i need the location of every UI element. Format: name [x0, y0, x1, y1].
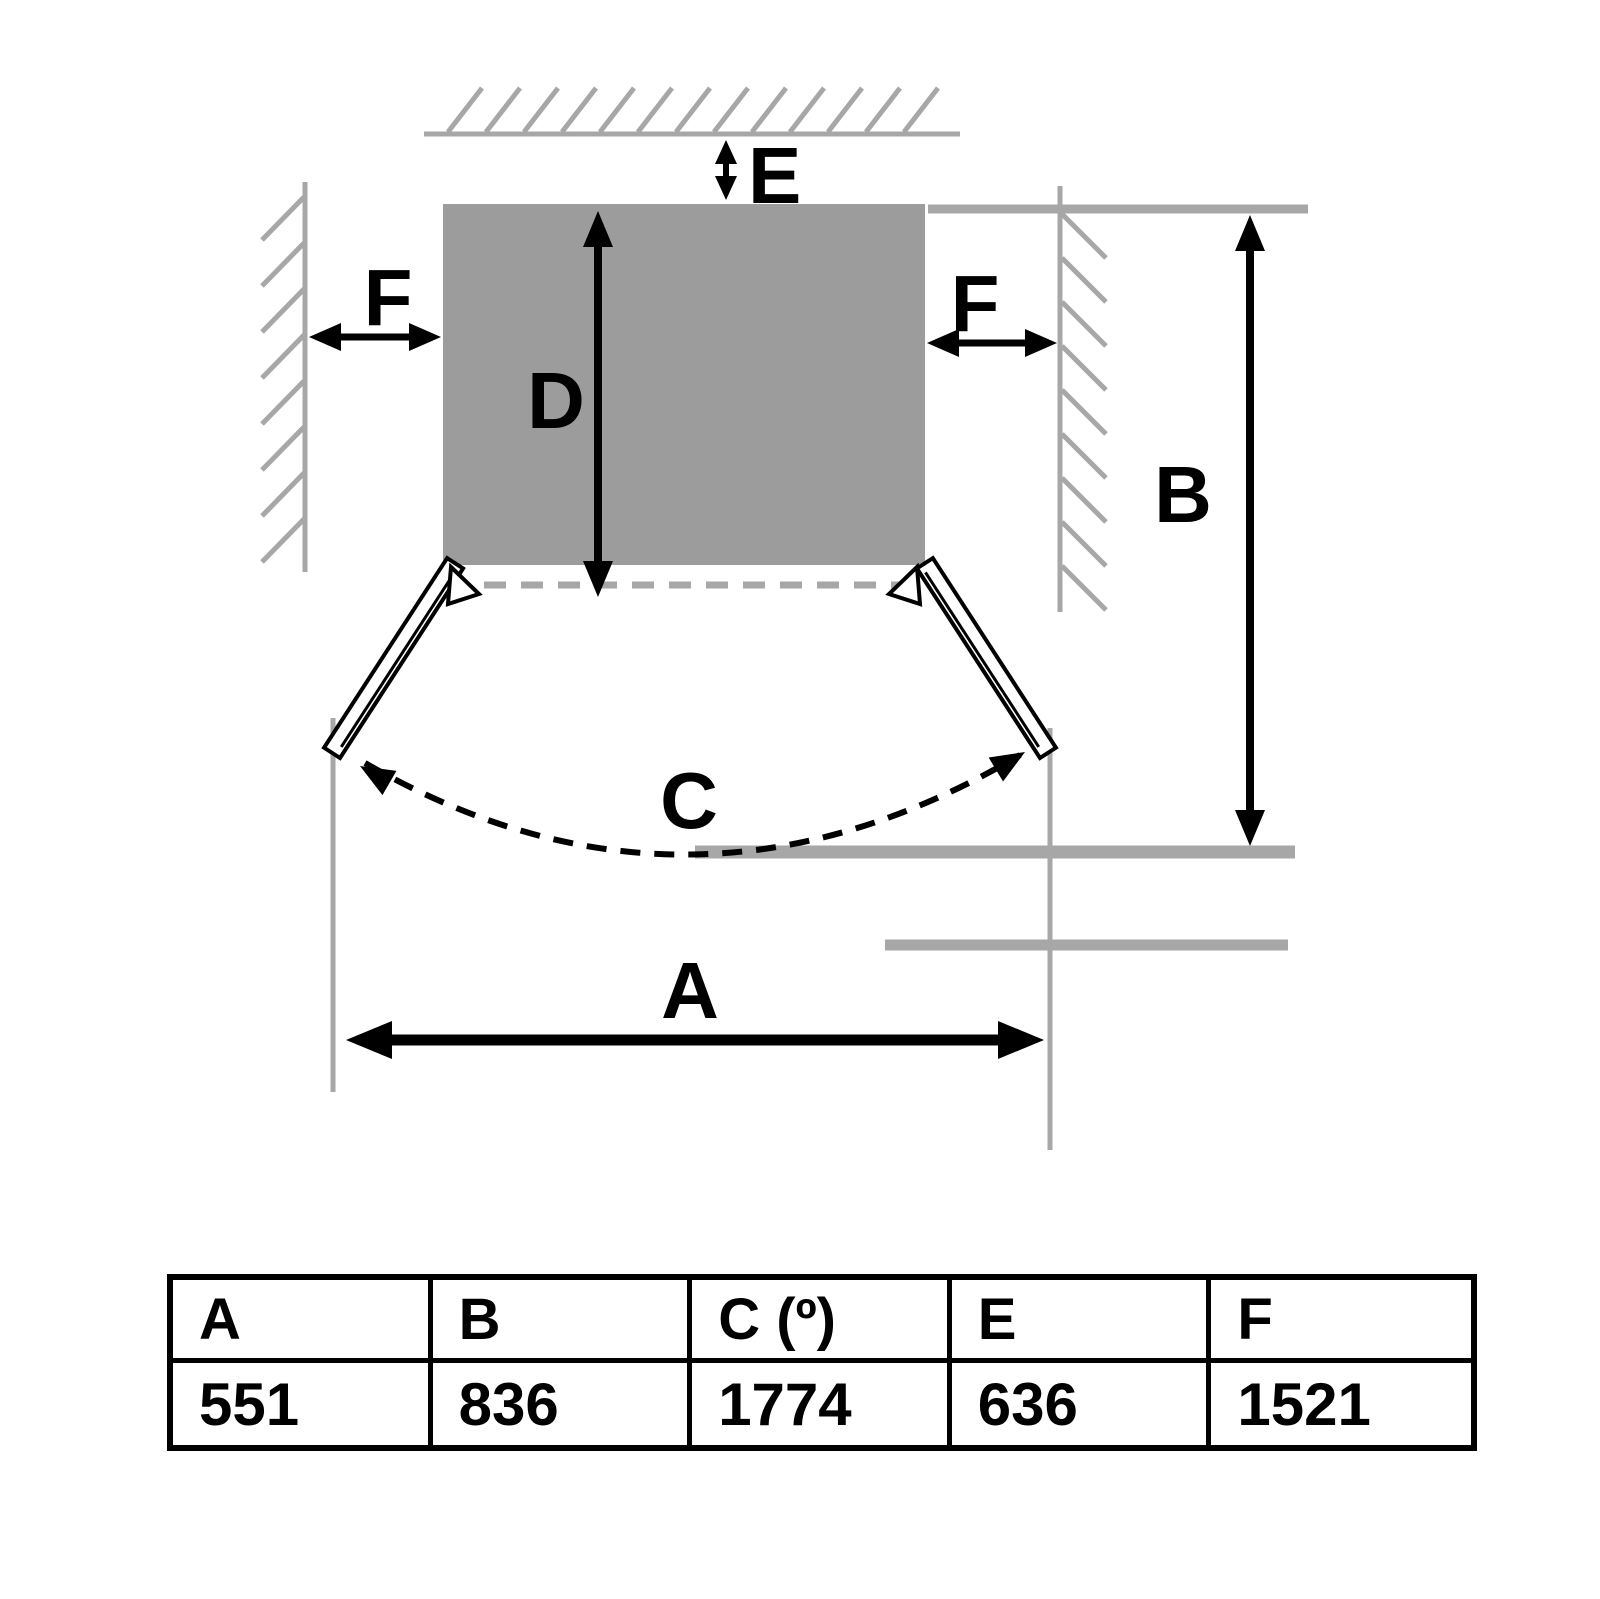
top-wall-hatching: [448, 88, 938, 132]
appliance-body: [443, 204, 925, 565]
installation-clearance-diagram: E F F D B C A: [0, 0, 1600, 1260]
table-header-c: C (º): [692, 1280, 952, 1363]
dimension-label-b: B: [1154, 450, 1212, 539]
dimension-label-c: C: [660, 756, 718, 845]
dimension-label-f-left: F: [364, 253, 413, 342]
left-wall-hatching: [262, 196, 305, 562]
table-value-b: 836: [433, 1363, 693, 1445]
table-value-f: 1521: [1211, 1363, 1471, 1445]
left-door-hinge-bracket: [448, 567, 479, 604]
right-wall: [1060, 186, 1106, 612]
right-wall-hatching: [1062, 214, 1106, 610]
left-door-open: [324, 558, 479, 758]
dimension-table: A B C (º) E F 551 836 1774 636 1521: [167, 1274, 1477, 1451]
left-wall: [262, 182, 305, 572]
right-door-open: [889, 558, 1056, 758]
table-value-e: 636: [952, 1363, 1212, 1445]
top-wall: [424, 88, 960, 134]
dimension-label-e: E: [748, 131, 801, 220]
table-value-a: 551: [173, 1363, 433, 1445]
table-header-e: E: [952, 1280, 1212, 1363]
table-header-b: B: [433, 1280, 693, 1363]
table-header-f: F: [1211, 1280, 1471, 1363]
dimension-arrow-b: [1235, 215, 1265, 846]
dimension-label-a: A: [661, 946, 719, 1035]
dimension-label-f-right: F: [951, 259, 1000, 348]
dimension-arrow-e: [715, 140, 737, 200]
table-value-c: 1774: [692, 1363, 952, 1445]
table-header-a: A: [173, 1280, 433, 1363]
dimension-label-d: D: [527, 356, 585, 445]
